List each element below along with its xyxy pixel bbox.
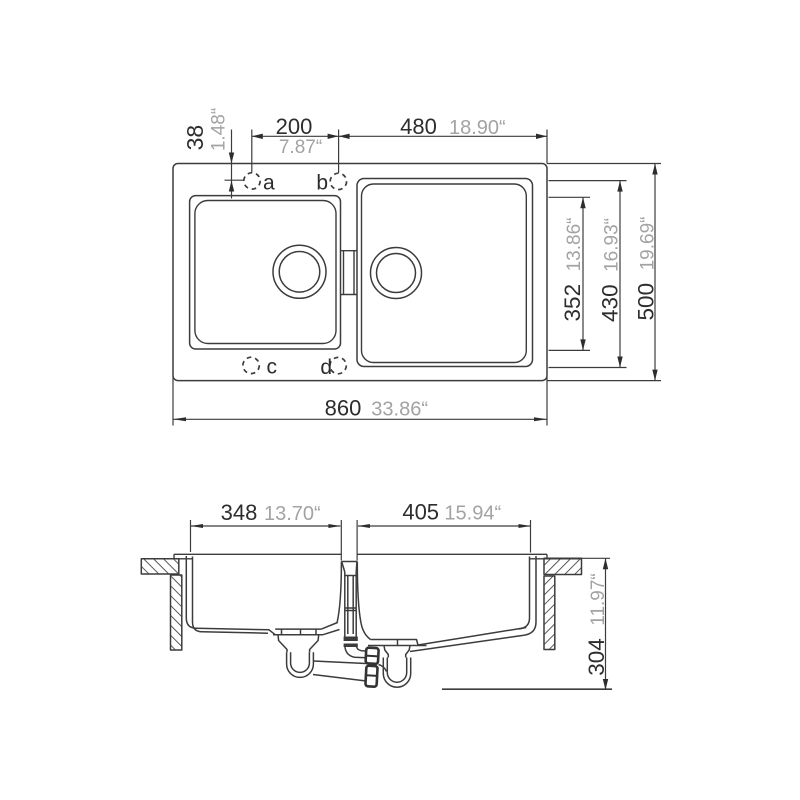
svg-text:348: 348: [221, 500, 258, 525]
svg-text:480: 480: [400, 114, 437, 139]
svg-text:c: c: [267, 356, 278, 379]
svg-text:352 13.86“: 352 13.86“: [560, 218, 585, 322]
svg-text:d: d: [320, 356, 332, 379]
svg-text:500 19.69“: 500 19.69“: [634, 217, 659, 321]
svg-text:b: b: [316, 172, 328, 195]
svg-text:304 11.97“: 304 11.97“: [584, 573, 609, 676]
svg-text:200: 200: [276, 114, 313, 139]
svg-text:a: a: [263, 171, 275, 194]
svg-text:33.86“: 33.86“: [371, 399, 428, 421]
svg-text:18.90“: 18.90“: [449, 117, 506, 139]
svg-text:860: 860: [325, 396, 362, 421]
svg-text:13.70“: 13.70“: [264, 503, 321, 525]
svg-text:1.48“: 1.48“: [209, 108, 230, 151]
svg-text:430 16.93“: 430 16.93“: [598, 218, 623, 322]
svg-text:7.87“: 7.87“: [279, 137, 322, 158]
svg-text:38: 38: [182, 125, 208, 151]
svg-text:15.94“: 15.94“: [444, 503, 501, 525]
svg-text:405: 405: [402, 500, 439, 525]
